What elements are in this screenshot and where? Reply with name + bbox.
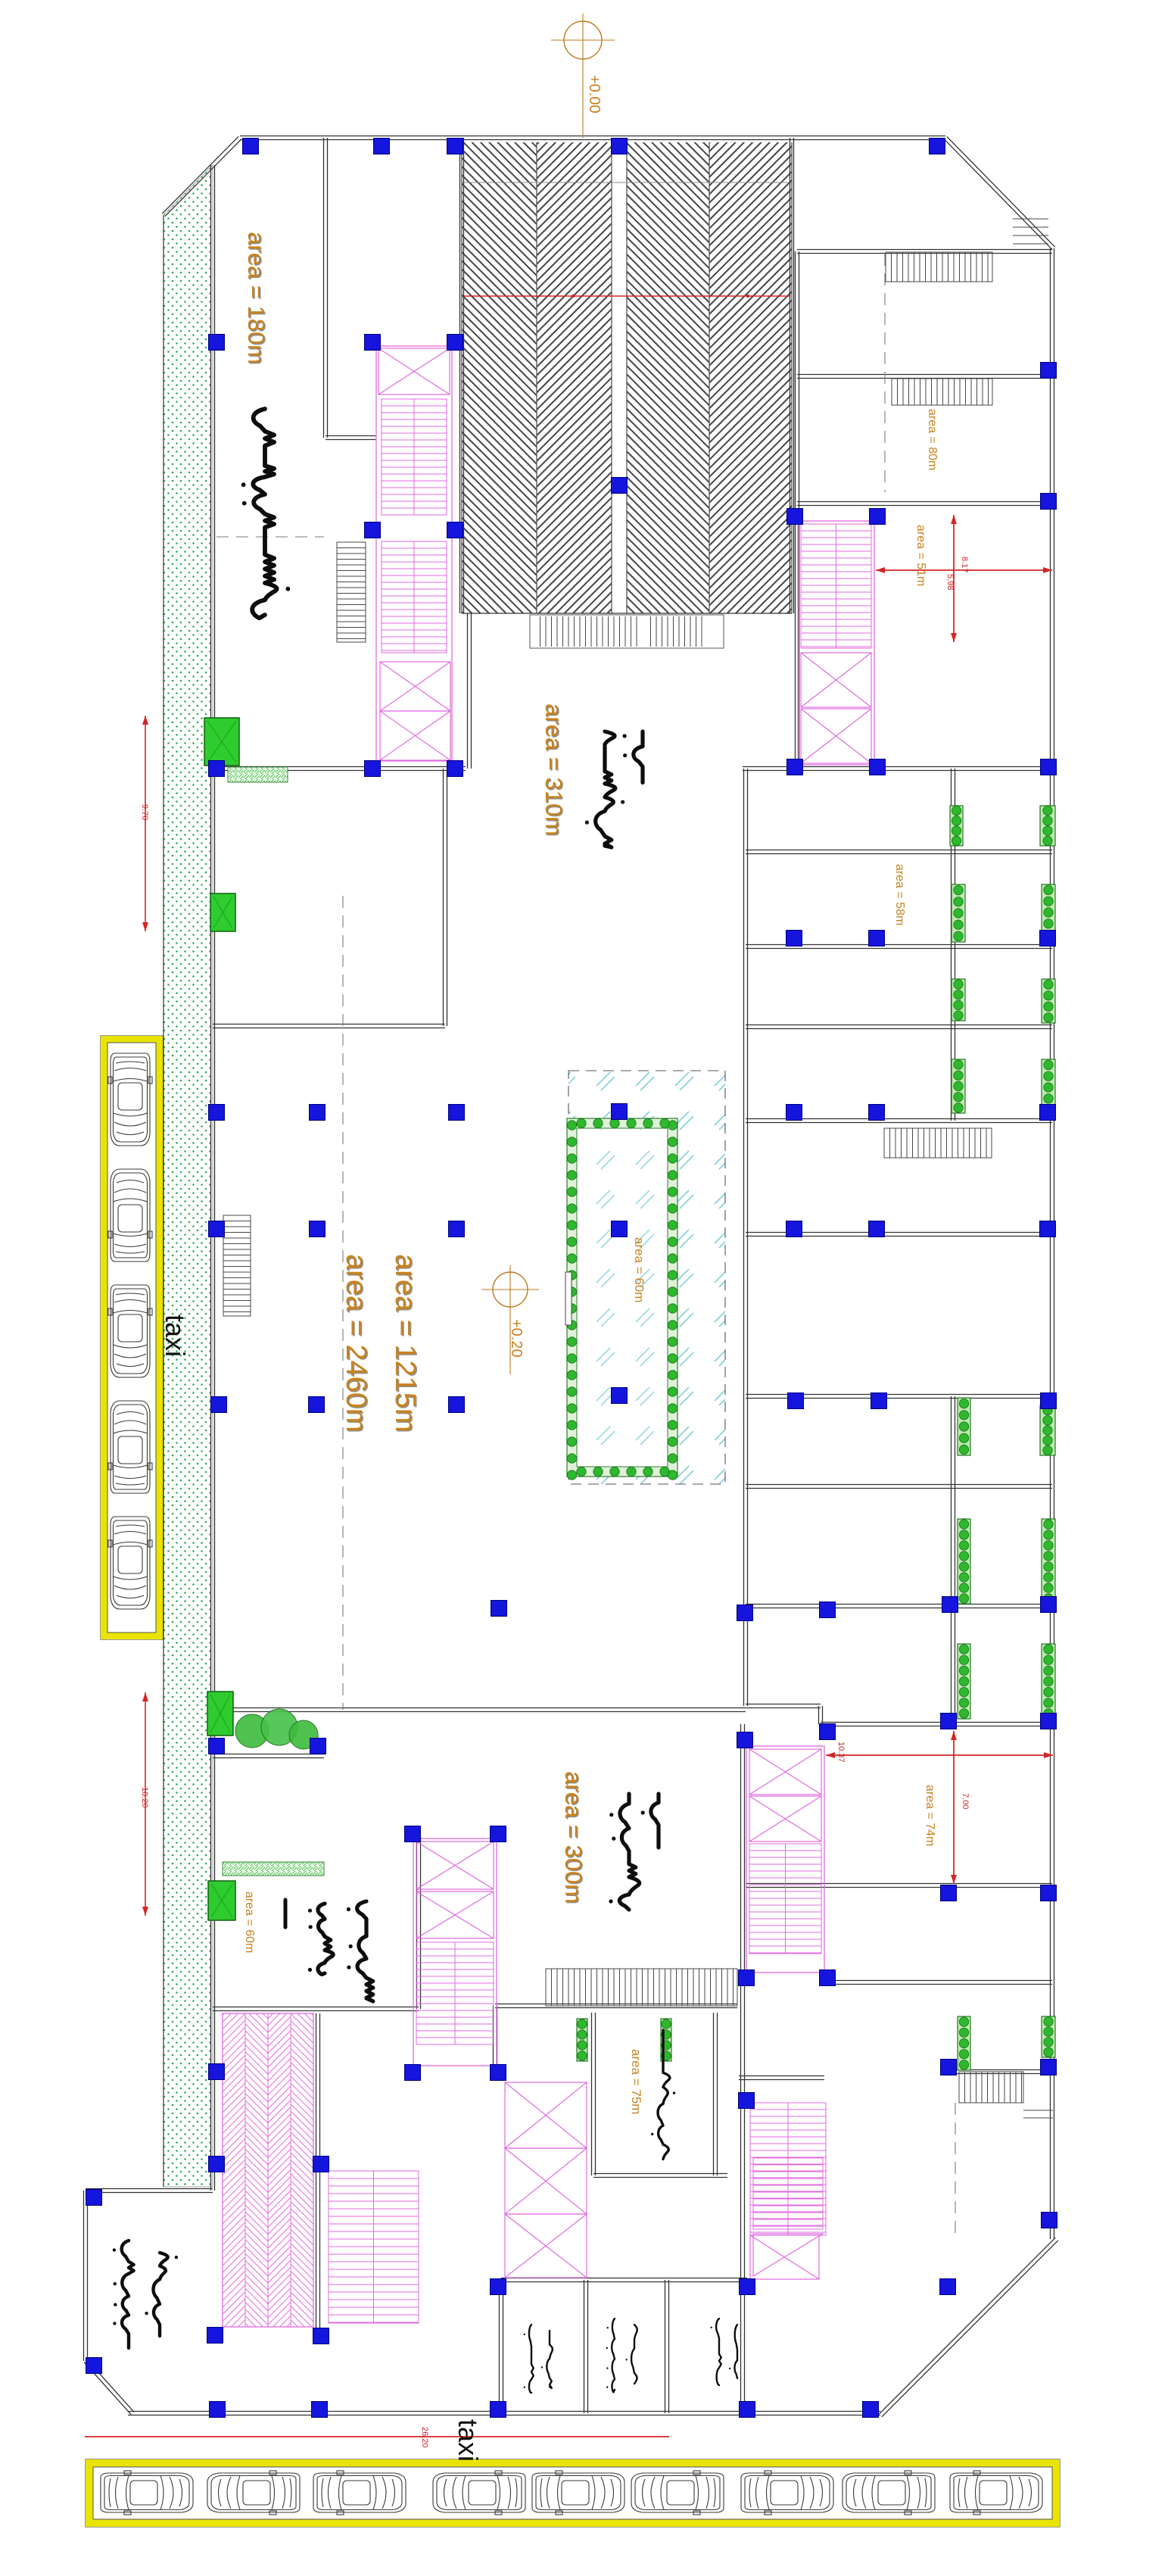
svg-text:area = 75m: area = 75m bbox=[629, 2049, 643, 2114]
svg-text:10.20: 10.20 bbox=[140, 1787, 149, 1808]
svg-text:area = 180m: area = 180m bbox=[243, 232, 269, 364]
svg-text:area = 58m: area = 58m bbox=[893, 864, 906, 925]
svg-text:area = 300m: area = 300m bbox=[560, 1771, 587, 1904]
svg-text:taxi: taxi bbox=[160, 1315, 191, 1357]
svg-text:taxi: taxi bbox=[453, 2419, 484, 2462]
svg-text:8.17: 8.17 bbox=[960, 557, 969, 572]
svg-text:area = 1215m: area = 1215m bbox=[389, 1254, 421, 1433]
svg-text:7.00: 7.00 bbox=[961, 1793, 970, 1809]
svg-text:area = 60m: area = 60m bbox=[243, 1891, 256, 1953]
svg-text:area = 80m: area = 80m bbox=[926, 409, 939, 470]
svg-text:area = 310m: area = 310m bbox=[540, 703, 567, 836]
svg-text:9.70: 9.70 bbox=[140, 804, 149, 820]
svg-text:area = 74m: area = 74m bbox=[923, 1785, 936, 1846]
svg-text:area = 60m: area = 60m bbox=[632, 1237, 646, 1302]
svg-text:5.98: 5.98 bbox=[945, 574, 955, 590]
svg-text:+0.00: +0.00 bbox=[586, 75, 603, 114]
svg-text:area = 2460m: area = 2460m bbox=[340, 1254, 372, 1433]
svg-text:10.37: 10.37 bbox=[836, 1742, 846, 1763]
svg-text:area = 51m: area = 51m bbox=[914, 525, 927, 586]
svg-text:+0.20: +0.20 bbox=[508, 1319, 525, 1358]
svg-text:26.20: 26.20 bbox=[420, 2427, 429, 2448]
